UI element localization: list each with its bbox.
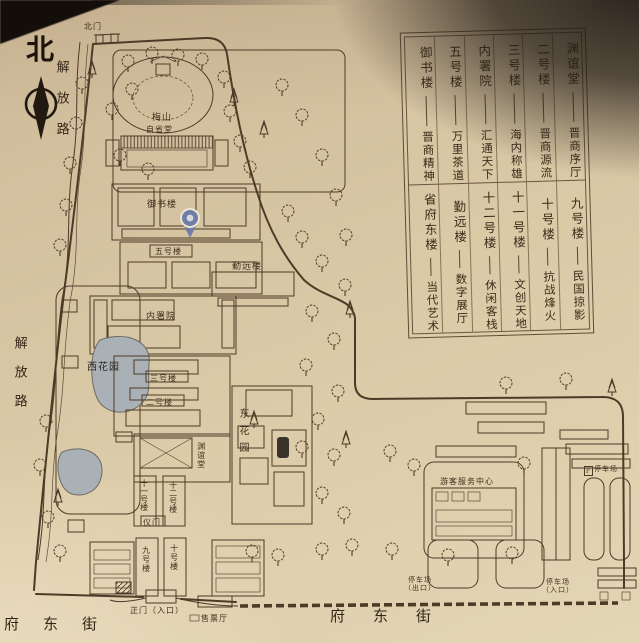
legend-cell: 三号楼海内称雄 — [493, 34, 526, 182]
legend-cell: 御书楼晋商精神 — [405, 37, 438, 185]
legend-exhibit-name: 晋商序厅 — [567, 127, 580, 179]
legend-building-name: 十一号楼 — [510, 190, 526, 250]
qinyuanlou-building — [212, 272, 294, 306]
legend-inner-border: 御书楼晋商精神 五号楼万里茶道 内署院汇通天下 三号楼海内称雄 二号楼晋商源流 … — [404, 32, 590, 335]
label-no9: 九号楼 — [141, 546, 151, 573]
label-north: 北 — [26, 34, 54, 68]
legend-exhibit-name: 民国掠影 — [571, 269, 584, 321]
legend-cell: 五号楼万里茶道 — [434, 36, 467, 184]
label-no10: 十号楼 — [169, 544, 179, 571]
legend-cell: 内署院汇通天下 — [464, 35, 497, 183]
label-yushulou: 御书楼 — [147, 199, 177, 210]
label-no11: 十一号楼 — [139, 479, 149, 511]
label-parking: 停车场 — [594, 465, 618, 473]
legend-dash — [513, 93, 515, 123]
legend-building-name: 御书楼 — [417, 46, 432, 91]
label-qinyuanlou: 勤远楼 — [232, 261, 262, 272]
legend-exhibit-name: 晋商精神 — [421, 131, 434, 183]
legend-dash — [484, 94, 486, 124]
legend-dash — [547, 247, 549, 265]
label-yuanyitang: 渊谊堂 — [196, 442, 206, 469]
west-garden-pond-small — [58, 449, 102, 495]
label-parking-exit: 停车场 （出口） — [404, 576, 436, 593]
legend-cell: 九号楼民国掠影 — [556, 181, 589, 330]
parking-p-icon: P — [584, 466, 593, 476]
legend-dash — [459, 250, 461, 268]
map-photo: 北门 梅山 自省堂 御书楼 五号楼 勤远楼 内署院 西花园 三号楼 二号楼 渊谊… — [0, 0, 639, 643]
label-jiefang-road-north: 解放路 — [54, 60, 70, 153]
label-no12: 十二号楼 — [168, 481, 178, 513]
label-north-gate: 北门 — [84, 22, 102, 32]
legend-building-name: 二号楼 — [535, 43, 550, 88]
west-garden — [56, 286, 149, 532]
label-fudong-street-east: 府东街 — [330, 608, 459, 626]
legend-exhibit-name: 当代艺术 — [425, 281, 438, 333]
legend-exhibit-name: 抗战烽火 — [542, 270, 555, 322]
legend-building-name: 十号楼 — [539, 197, 554, 242]
legend-building-name: 九号楼 — [568, 196, 583, 241]
label-no3: 三号楼 — [150, 374, 177, 384]
legend-dash — [425, 96, 427, 126]
legend-exhibit-name: 汇通天下 — [479, 129, 492, 181]
legend-building-name: 十二号楼 — [480, 191, 496, 251]
legend-cell: 省府东楼当代艺术 — [409, 185, 442, 334]
label-parking-entrance: 停车场 （入口） — [542, 578, 574, 595]
current-location-pin — [181, 209, 199, 238]
legend-cell: 十二号楼休闲客栈 — [468, 183, 501, 332]
legend-dash — [543, 93, 545, 123]
legend-building-name: 五号楼 — [447, 45, 462, 90]
legend-row-1: 御书楼晋商精神 五号楼万里茶道 内署院汇通天下 三号楼海内称雄 二号楼晋商源流 … — [405, 33, 585, 185]
legend-building-name: 三号楼 — [505, 43, 520, 88]
legend-building-name: 内署院 — [476, 44, 491, 89]
legend-row-2: 省府东楼当代艺术 勤远楼数字展厅 十二号楼休闲客栈 十一号楼文创天地 十号楼抗战… — [409, 180, 589, 334]
legend-exhibit-name: 晋商源流 — [538, 127, 551, 179]
label-yimen: 仪门 — [143, 518, 161, 528]
legend-dash — [455, 95, 457, 125]
legend-building-name: 省府东楼 — [422, 193, 438, 253]
legend-dash — [489, 256, 491, 274]
yuanyitang-hall — [134, 434, 230, 482]
legend-dash — [572, 92, 574, 122]
label-neishuyuan: 内署院 — [146, 311, 176, 322]
label-east-garden: 东花园 — [236, 408, 248, 459]
label-ticket-office: 售票厅 — [201, 614, 228, 624]
legend-exhibit-name: 海内称雄 — [509, 128, 522, 180]
legend-table: 御书楼晋商精神 五号楼万里茶道 内署院汇通天下 三号楼海内称雄 二号楼晋商源流 … — [400, 27, 594, 338]
label-zixingtang: 自省堂 — [146, 125, 173, 135]
legend-building-name: 勤远楼 — [451, 199, 466, 244]
label-no2: 二号楼 — [146, 398, 173, 408]
label-jiefang-road-south: 解放路 — [12, 336, 28, 423]
label-visitor-center: 游客服务中心 — [440, 477, 494, 487]
legend-exhibit-name: 万里茶道 — [450, 130, 463, 182]
legend-cell: 十号楼抗战烽火 — [526, 181, 559, 330]
label-west-garden: 西花园 — [87, 362, 120, 374]
legend-dash — [430, 258, 432, 276]
legend-exhibit-name: 文创天地 — [513, 278, 526, 330]
legend-dash — [576, 246, 578, 264]
legend-cell: 十一号楼文创天地 — [497, 182, 530, 331]
car-icon — [277, 437, 289, 458]
legend-cell: 二号楼晋商源流 — [522, 33, 555, 181]
label-main-gate-entrance: 正门（入口） — [130, 606, 184, 616]
legend-cell: 渊谊堂晋商序厅 — [552, 33, 585, 181]
legend-cell: 勤远楼数字展厅 — [438, 184, 471, 333]
legend-exhibit-name: 数字展厅 — [454, 272, 467, 324]
legend-dash — [518, 255, 520, 273]
label-fudong-street-west: 府东街 — [4, 616, 121, 634]
legend-building-name: 渊谊堂 — [564, 42, 579, 87]
compass-icon — [26, 76, 56, 140]
legend-exhibit-name: 休闲客栈 — [484, 279, 497, 331]
label-meishan: 梅山 — [152, 112, 172, 123]
label-no5: 五号楼 — [155, 247, 182, 257]
